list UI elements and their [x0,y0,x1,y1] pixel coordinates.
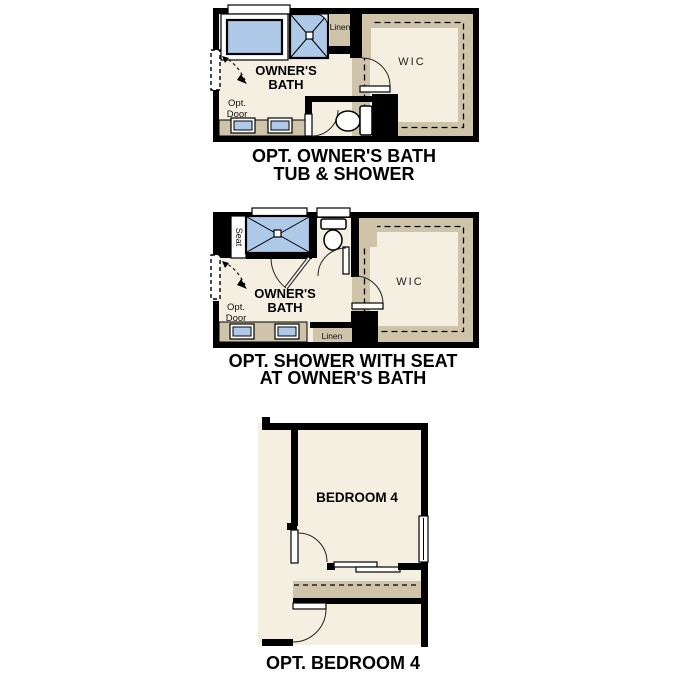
opt-door-label-line1: Opt. [228,98,246,109]
floorplan-page: OWNER'S BATH WIC Linen Opt. Door OPT. OW… [0,0,687,687]
floorplan-image: OWNER'S BATH WIC Linen Opt. Door OPT. OW… [0,0,687,687]
sink [278,327,296,336]
wic-shelf-return [362,14,371,58]
wall [213,136,479,142]
door-panel [352,303,383,309]
bedroom-floor [258,423,428,645]
wall [287,523,297,530]
sink [233,327,251,336]
wall [328,46,352,54]
wall [310,322,352,328]
optional-door-opening [211,255,220,299]
toilet-tank [321,219,346,229]
door-panel [291,530,298,563]
wall [351,311,378,348]
opt-door-label-line1: Opt. [227,302,245,313]
plan-caption: OPT. BEDROOM 4 [266,653,420,673]
toilet-bowl [324,230,342,250]
plan-caption-line2: TUB & SHOWER [274,164,415,184]
window [317,208,350,217]
wall [473,8,479,142]
owners-bath-label-line2: BATH [268,77,303,92]
sink [271,121,289,130]
wall [213,8,219,52]
owners-bath-label-line2: BATH [267,300,302,315]
closet-bypass-door [356,567,400,572]
linen-label: Linen [330,22,351,32]
wall [305,96,312,114]
wall [262,639,293,646]
sink [234,121,252,130]
wall [305,96,372,102]
window [228,5,290,14]
opt-door-label-line2: Door [226,313,247,324]
shower-drain [306,32,313,39]
wall [213,342,479,348]
wall [213,212,233,258]
wall [213,301,219,348]
tub [227,20,282,54]
wall [351,212,359,277]
wall [291,430,298,526]
seat-label: Seat [234,228,244,247]
door-panel [293,603,326,609]
door-panel [360,86,390,92]
owners-bath-label-line1: OWNER'S [255,63,317,78]
closet-bypass-door [334,562,377,567]
toilet-tank [360,106,372,135]
toilet-bowl [336,111,360,131]
linen-label: Linen [322,331,343,341]
closet-shelf [293,581,421,598]
wall [372,94,398,142]
wall [398,563,421,570]
wall [262,423,428,430]
plan-owners-bath-tub-shower: OWNER'S BATH WIC Linen Opt. Door OPT. OW… [211,5,479,184]
plan-caption-line2: AT OWNER'S BATH [260,368,427,388]
opt-door-label-line2: Door [227,109,248,120]
owners-bath-label-line1: OWNER'S [254,286,316,301]
plan-owners-bath-shower-seat: Seat OWNER'S BATH WIC Linen Opt. Door OP… [211,208,479,388]
plan-bedroom-4: BEDROOM 4 OPT. BEDROOM 4 [258,417,428,673]
door-panel [343,247,349,274]
shower-drain [274,230,281,237]
wic-shelf-return [358,220,377,247]
door-panel [305,114,312,136]
wall [262,417,270,424]
wall [473,212,479,348]
wic-label: WIC [398,56,425,68]
optional-door-opening [211,50,220,90]
plan-caption-line1: OPT. OWNER'S BATH [252,146,436,166]
wic-label: WIC [396,276,423,288]
bedroom-label: BEDROOM 4 [316,490,398,505]
wall [213,88,219,142]
